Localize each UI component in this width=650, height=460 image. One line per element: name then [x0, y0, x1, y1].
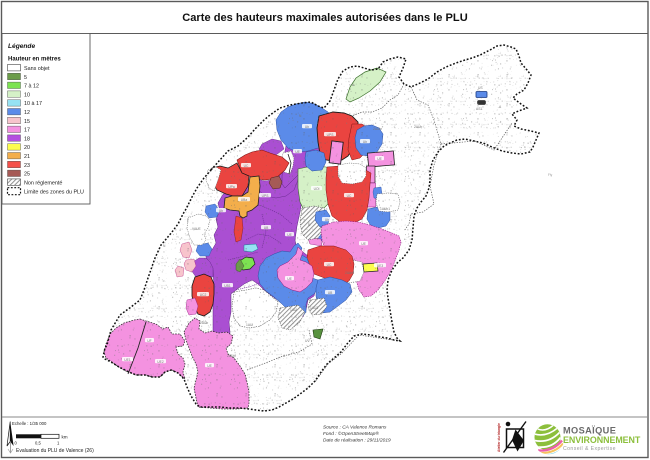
svg-text:UPS: UPS	[327, 133, 335, 137]
svg-text:UC2: UC2	[200, 293, 207, 297]
svg-text:23: 23	[24, 163, 30, 169]
svg-text:5: 5	[24, 75, 27, 81]
svg-text:1AUl: 1AUl	[290, 308, 297, 312]
svg-text:UB: UB	[264, 226, 269, 230]
svg-text:Ub: Ub	[305, 125, 309, 129]
svg-text:UOl: UOl	[314, 187, 320, 191]
svg-text:2AUb: 2AUb	[414, 125, 422, 129]
svg-text:18: 18	[24, 136, 30, 142]
svg-text:Non réglementé: Non réglementé	[24, 180, 62, 186]
svg-text:20: 20	[24, 145, 30, 151]
svg-text:2AUb: 2AUb	[200, 321, 208, 325]
svg-text:1AUb1: 1AUb1	[380, 207, 390, 211]
svg-text:Limite des zones du PLU: Limite des zones du PLU	[24, 190, 84, 196]
svg-text:UV: UV	[305, 339, 310, 343]
svg-text:Date de réalisation : 29/11/20: Date de réalisation : 29/11/2019	[323, 438, 391, 444]
svg-text:Fond : ©OpenStreetMap®: Fond : ©OpenStreetMap®	[323, 430, 379, 437]
svg-text:km: km	[62, 435, 68, 440]
svg-text:2AUm: 2AUm	[227, 354, 236, 358]
svg-text:2AUm: 2AUm	[373, 127, 382, 131]
svg-text:UE: UE	[287, 233, 292, 237]
svg-text:12: 12	[24, 110, 30, 116]
svg-text:Fly: Fly	[548, 173, 553, 177]
svg-text:UE: UE	[207, 364, 212, 368]
svg-text:7 à 12: 7 à 12	[24, 84, 39, 90]
svg-text:Carte des hauteurs maximales a: Carte des hauteurs maximales autorisées …	[182, 12, 467, 24]
svg-text:25: 25	[24, 172, 30, 178]
svg-text:UBa: UBa	[241, 198, 248, 202]
svg-text:UB1: UB1	[224, 284, 231, 288]
svg-text:UE2: UE2	[157, 360, 164, 364]
svg-text:Conseil & Expertise: Conseil & Expertise	[563, 446, 616, 452]
svg-text:Hauteur en mètres: Hauteur en mètres	[8, 57, 61, 63]
svg-text:UC: UC	[327, 263, 332, 267]
svg-text:UB: UB	[328, 291, 333, 295]
svg-text:Ub: Ub	[219, 209, 223, 213]
svg-text:UF: UF	[147, 339, 151, 343]
svg-text:15: 15	[24, 119, 30, 125]
svg-text:Ub: Ub	[363, 140, 367, 144]
svg-text:Echelle : 1/35 000: Echelle : 1/35 000	[12, 421, 47, 426]
svg-text:UC: UC	[347, 194, 352, 198]
svg-text:Légende: Légende	[8, 43, 35, 50]
svg-text:Evaluation du PLU de Valence (: Evaluation du PLU de Valence (26)	[16, 448, 94, 454]
svg-text:US: US	[478, 86, 483, 90]
svg-text:UE: UE	[377, 157, 382, 161]
svg-text:UC: UC	[244, 164, 249, 168]
svg-text:UE1: UE1	[124, 358, 131, 362]
svg-text:UPS: UPS	[262, 194, 270, 198]
svg-text:Source : CA Valence Romans: Source : CA Valence Romans	[323, 425, 387, 431]
svg-text:1AU3: 1AU3	[310, 306, 318, 310]
svg-text:UE: UE	[295, 150, 300, 154]
svg-text:UPa: UPa	[228, 185, 235, 189]
svg-text:17: 17	[24, 128, 30, 134]
svg-text:Ub: Ub	[325, 218, 329, 222]
svg-text:VAUE: VAUE	[192, 227, 202, 231]
svg-text:AS1: AS1	[476, 107, 482, 111]
svg-text:Sans objet: Sans objet	[24, 66, 50, 72]
svg-text:UE3: UE3	[377, 264, 384, 268]
svg-text:10 à 17: 10 à 17	[24, 101, 42, 107]
svg-text:21: 21	[24, 154, 30, 160]
svg-text:UE: UE	[287, 277, 292, 281]
svg-text:ENVIRONNEMENT: ENVIRONNEMENT	[563, 435, 641, 445]
svg-text:1AUl: 1AUl	[246, 323, 253, 327]
svg-text:10: 10	[24, 92, 30, 98]
svg-text:0,5: 0,5	[35, 441, 41, 446]
svg-text:UE: UE	[361, 242, 366, 246]
svg-text:Atelier du triangle: Atelier du triangle	[497, 423, 501, 452]
svg-text:2AUm: 2AUm	[345, 271, 354, 275]
